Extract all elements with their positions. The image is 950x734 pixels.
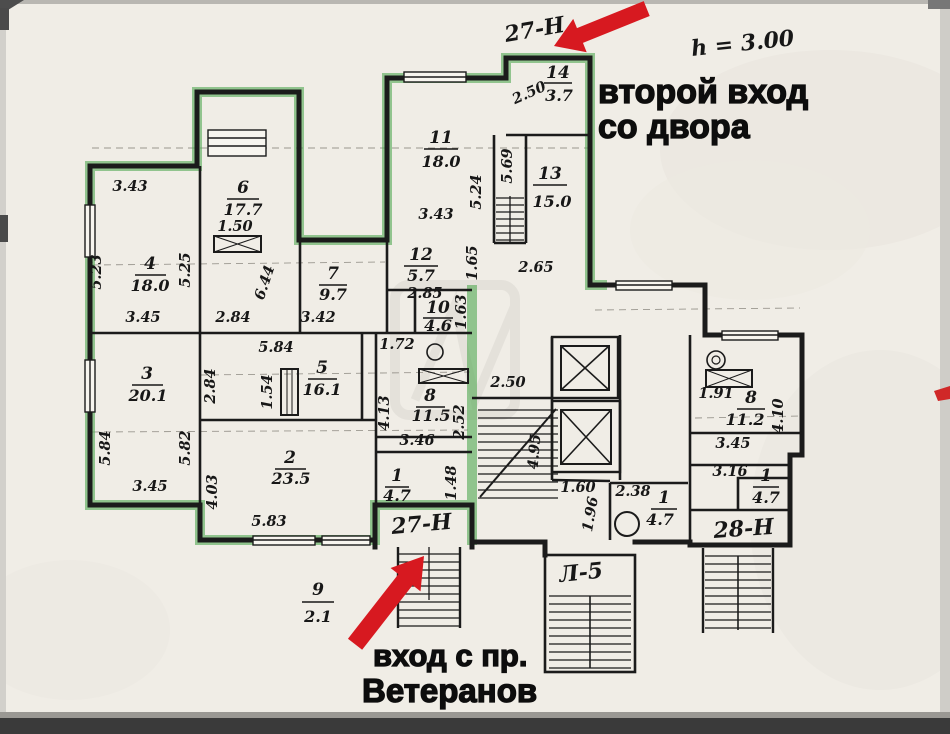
window-right-1 [616,281,672,290]
entrance1-text-line2: Ветеранов [362,672,537,709]
room-label-10: 104.6 [423,298,453,335]
svg-text:18.0: 18.0 [131,276,170,295]
entrance1-text-line1: вход с пр. [373,638,527,673]
dim-label: 1.65 [464,245,481,280]
svg-text:8: 8 [744,388,757,408]
svg-text:9.7: 9.7 [319,285,347,304]
svg-text:1: 1 [391,466,403,486]
entrance2-text-line2: со двора [598,108,751,146]
svg-text:1: 1 [760,466,772,486]
svg-text:23.5: 23.5 [271,469,311,488]
entrance2-text-line1: второй вход [598,73,808,111]
dim-label: 3.45 [715,435,750,452]
dim-label: 3.46 [399,432,434,449]
window-bottom-1 [253,536,315,545]
dim-label: 1.50 [217,218,252,235]
dim-label: 4.03 [204,474,221,509]
window-bay-top [208,130,266,156]
dim-label: 5.24 [468,174,485,209]
dim-label: 2.84 [214,309,250,326]
window-right-2 [722,331,778,340]
dim-label: 2.85 [406,285,442,302]
floor-plan-photo: 143.7 1118.0 1315.0 617.7 418.0 79.7 125… [0,0,950,734]
dim-label: 3.45 [125,309,160,326]
svg-text:3: 3 [141,364,153,384]
svg-text:16.1: 16.1 [303,380,342,399]
premises-label-right: 28-Н [712,514,776,544]
svg-text:4.7: 4.7 [752,488,780,507]
dim-label: 5.84 [258,339,293,356]
dim-label: 2.52 [451,404,468,440]
dim-label: 4.95 [525,433,545,470]
stairwell-label: Л-5 [557,558,604,589]
dim-label: 3.42 [300,309,335,326]
svg-text:1: 1 [658,488,670,508]
svg-text:14: 14 [546,63,570,83]
window-left-2 [85,360,95,412]
svg-text:2: 2 [283,448,296,468]
dim-label: 2.50 [489,374,525,391]
window-left-1 [85,205,95,257]
window-bottom-2 [322,536,370,545]
svg-text:15.0: 15.0 [533,192,572,211]
svg-text:13: 13 [538,164,562,184]
floor-plan-svg: 143.7 1118.0 1315.0 617.7 418.0 79.7 125… [0,0,950,734]
svg-text:11.2: 11.2 [726,410,765,429]
svg-text:18.0: 18.0 [422,152,461,171]
dim-label: 4.10 [770,398,787,433]
svg-text:9: 9 [312,580,324,600]
dim-label: 1.63 [453,294,470,329]
window-top [404,72,466,82]
dim-label: 3.45 [132,478,167,495]
dim-label: 1.54 [259,374,276,409]
svg-text:20.1: 20.1 [128,386,168,405]
svg-text:5.7: 5.7 [407,266,435,285]
dim-label: 2.65 [517,259,553,276]
svg-text:11: 11 [429,128,453,148]
dim-label: 3.16 [712,463,747,480]
dim-label: 1.48 [443,465,460,500]
svg-text:2.1: 2.1 [303,607,332,626]
svg-text:4.6: 4.6 [424,316,452,335]
svg-text:7: 7 [327,264,339,284]
dim-label: 5.84 [97,430,114,465]
dim-label: 3.43 [112,178,147,195]
dim-label: 4.13 [376,395,393,430]
svg-text:17.7: 17.7 [224,200,263,219]
dim-label: 1.91 [698,385,733,402]
dim-label: 5.83 [251,513,286,530]
dim-label: 2.84 [202,368,219,404]
dim-label: 3.43 [418,206,453,223]
dim-label: 5.23 [88,254,105,289]
svg-text:6: 6 [237,178,249,198]
dim-label: 5.25 [177,252,194,287]
svg-text:8: 8 [423,386,436,406]
svg-text:11.5: 11.5 [412,406,451,425]
svg-text:4.7: 4.7 [383,486,411,505]
dim-label: 1.60 [560,479,595,496]
dim-label: 5.82 [177,430,194,465]
dim-label: 5.69 [499,148,516,183]
dim-label: 2.38 [614,483,650,500]
dim-label: 1.72 [379,336,414,353]
svg-text:12: 12 [409,245,433,265]
svg-text:3.7: 3.7 [545,86,573,105]
svg-text:4.7: 4.7 [646,510,674,529]
svg-text:5: 5 [316,358,328,378]
premises-label-bottom: 27-Н [389,509,454,540]
svg-text:4: 4 [144,254,156,274]
